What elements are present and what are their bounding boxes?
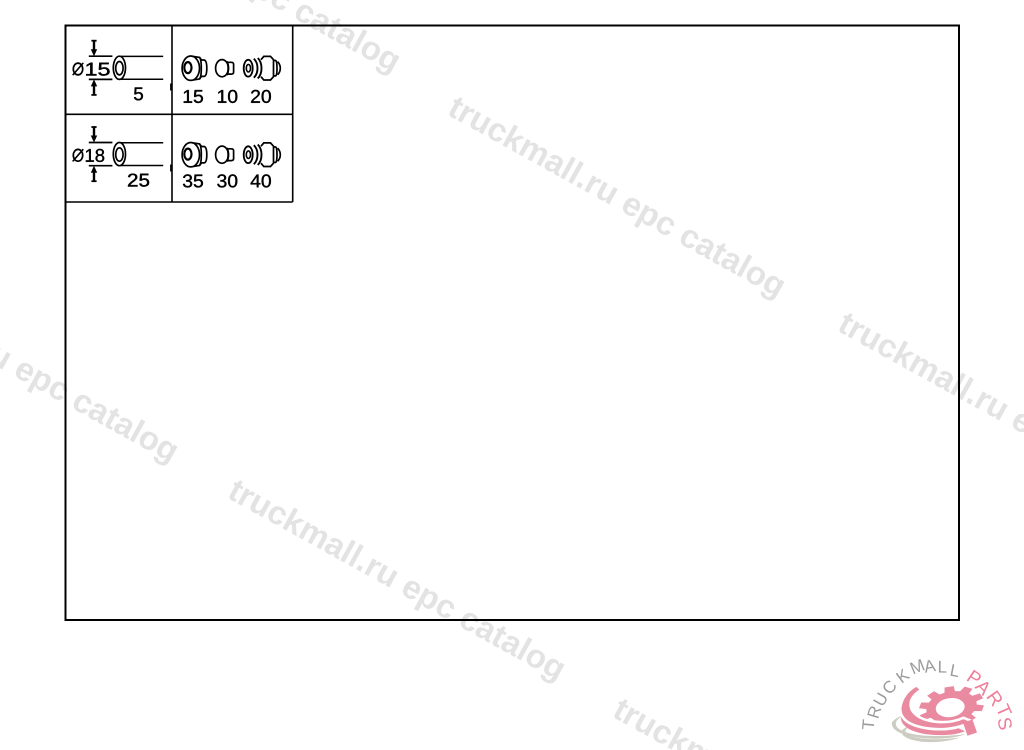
svg-text:T: T — [859, 719, 879, 731]
svg-text:L: L — [937, 658, 947, 677]
